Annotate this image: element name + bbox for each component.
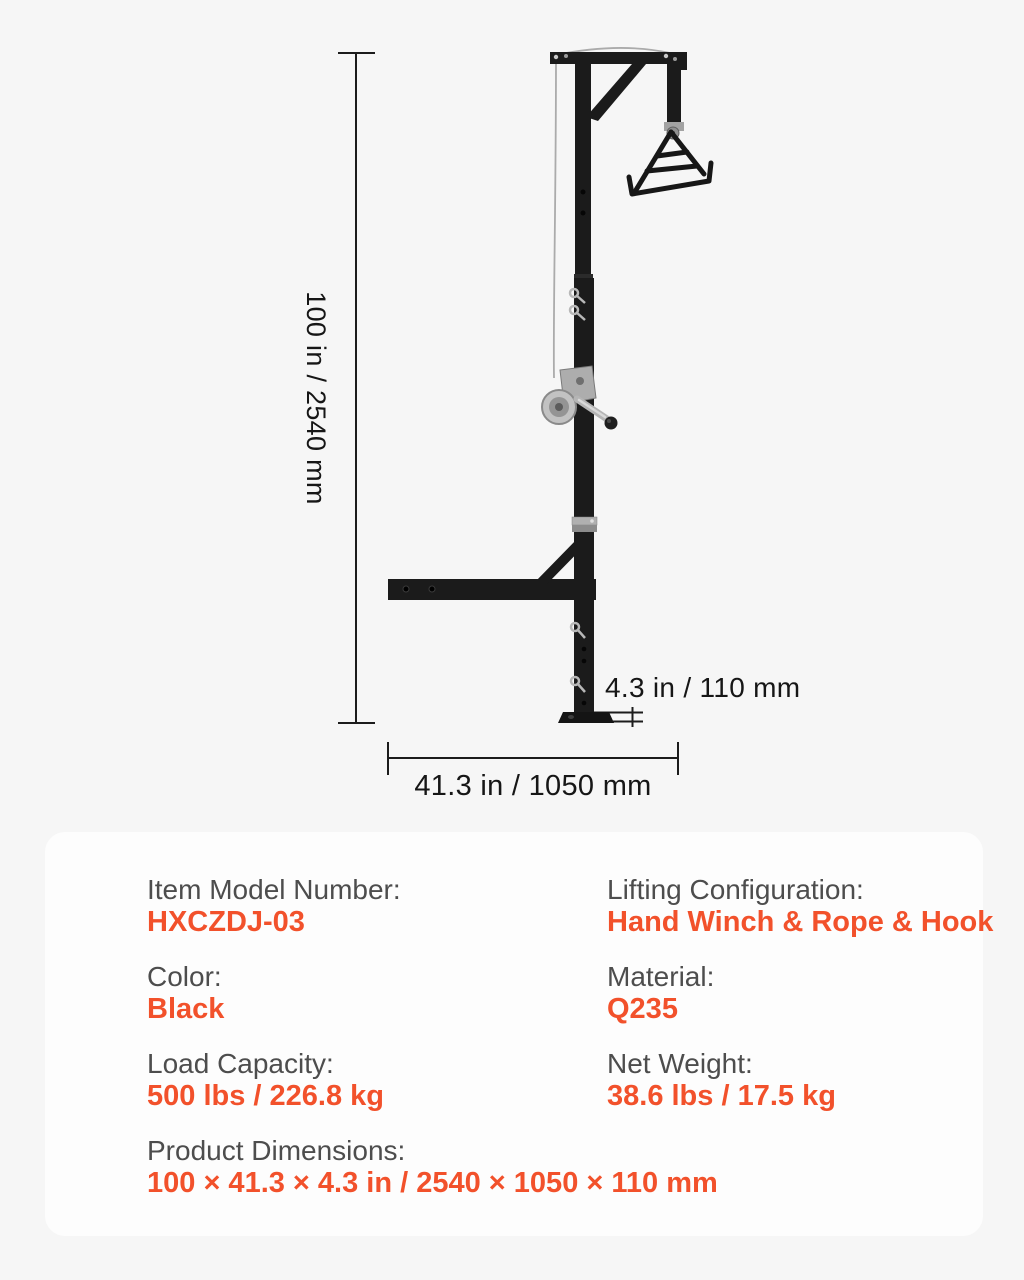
spec-value: 500 lbs / 226.8 kg <box>147 1079 607 1113</box>
spec-label: Lifting Configuration: <box>607 874 993 905</box>
spec-label: Net Weight: <box>607 1048 993 1079</box>
spec-item-model-number: Item Model Number: HXCZDJ-03 <box>147 874 607 939</box>
spec-item-color: Color: Black <box>147 961 607 1026</box>
mast-upper <box>575 52 591 278</box>
height-dimension-label: 100 in / 2540 mm <box>301 278 331 518</box>
depth-dimension-label: 4.3 in / 110 mm <box>605 672 800 704</box>
spec-value: 38.6 lbs / 17.5 kg <box>607 1079 993 1113</box>
hoist-frame <box>388 52 687 723</box>
winch-handle-knob <box>605 417 618 430</box>
specifications-grid: Item Model Number: HXCZDJ-03 Lifting Con… <box>45 832 983 1200</box>
spec-label: Product Dimensions: <box>147 1135 993 1166</box>
spec-item-load-capacity: Load Capacity: 500 lbs / 226.8 kg <box>147 1048 607 1113</box>
gambrel-rung-1 <box>657 152 687 156</box>
product-dimension-diagram: 100 in / 2540 mm 4.3 in / 110 mm 41.3 in… <box>0 0 1024 820</box>
base-plate-hole <box>568 715 574 719</box>
spec-label: Material: <box>607 961 993 992</box>
cable-vertical <box>554 56 556 378</box>
dimension-lines <box>338 53 678 775</box>
spec-label: Color: <box>147 961 607 992</box>
base-plate <box>558 712 614 723</box>
winch-gear <box>576 377 584 385</box>
spec-value: Black <box>147 992 607 1026</box>
hanger-bar <box>667 60 681 124</box>
spec-value: HXCZDJ-03 <box>147 905 607 939</box>
spec-value: Q235 <box>607 992 993 1026</box>
spec-label: Item Model Number: <box>147 874 607 905</box>
height-dimension-line <box>338 53 375 723</box>
gambrel-hook <box>629 132 711 194</box>
spec-value: 100 × 41.3 × 4.3 in / 2540 × 1050 × 110 … <box>147 1166 993 1200</box>
mast-collar <box>572 517 597 532</box>
gambrel-rung-2 <box>647 166 697 171</box>
spec-item-net-weight: Net Weight: 38.6 lbs / 17.5 kg <box>607 1048 993 1113</box>
gambrel-left-side <box>636 132 671 190</box>
specifications-panel: Item Model Number: HXCZDJ-03 Lifting Con… <box>45 832 983 1236</box>
width-dimension-label: 41.3 in / 1050 mm <box>383 770 683 803</box>
spec-label: Load Capacity: <box>147 1048 607 1079</box>
spec-value: Hand Winch & Rope & Hook <box>607 905 993 939</box>
hitch-arm <box>388 579 596 600</box>
top-brace <box>586 64 646 121</box>
hoist-illustration <box>0 0 1024 820</box>
spec-item-lifting-configuration: Lifting Configuration: Hand Winch & Rope… <box>607 874 993 939</box>
spec-item-product-dimensions: Product Dimensions: 100 × 41.3 × 4.3 in … <box>147 1135 993 1200</box>
spec-item-material: Material: Q235 <box>607 961 993 1026</box>
